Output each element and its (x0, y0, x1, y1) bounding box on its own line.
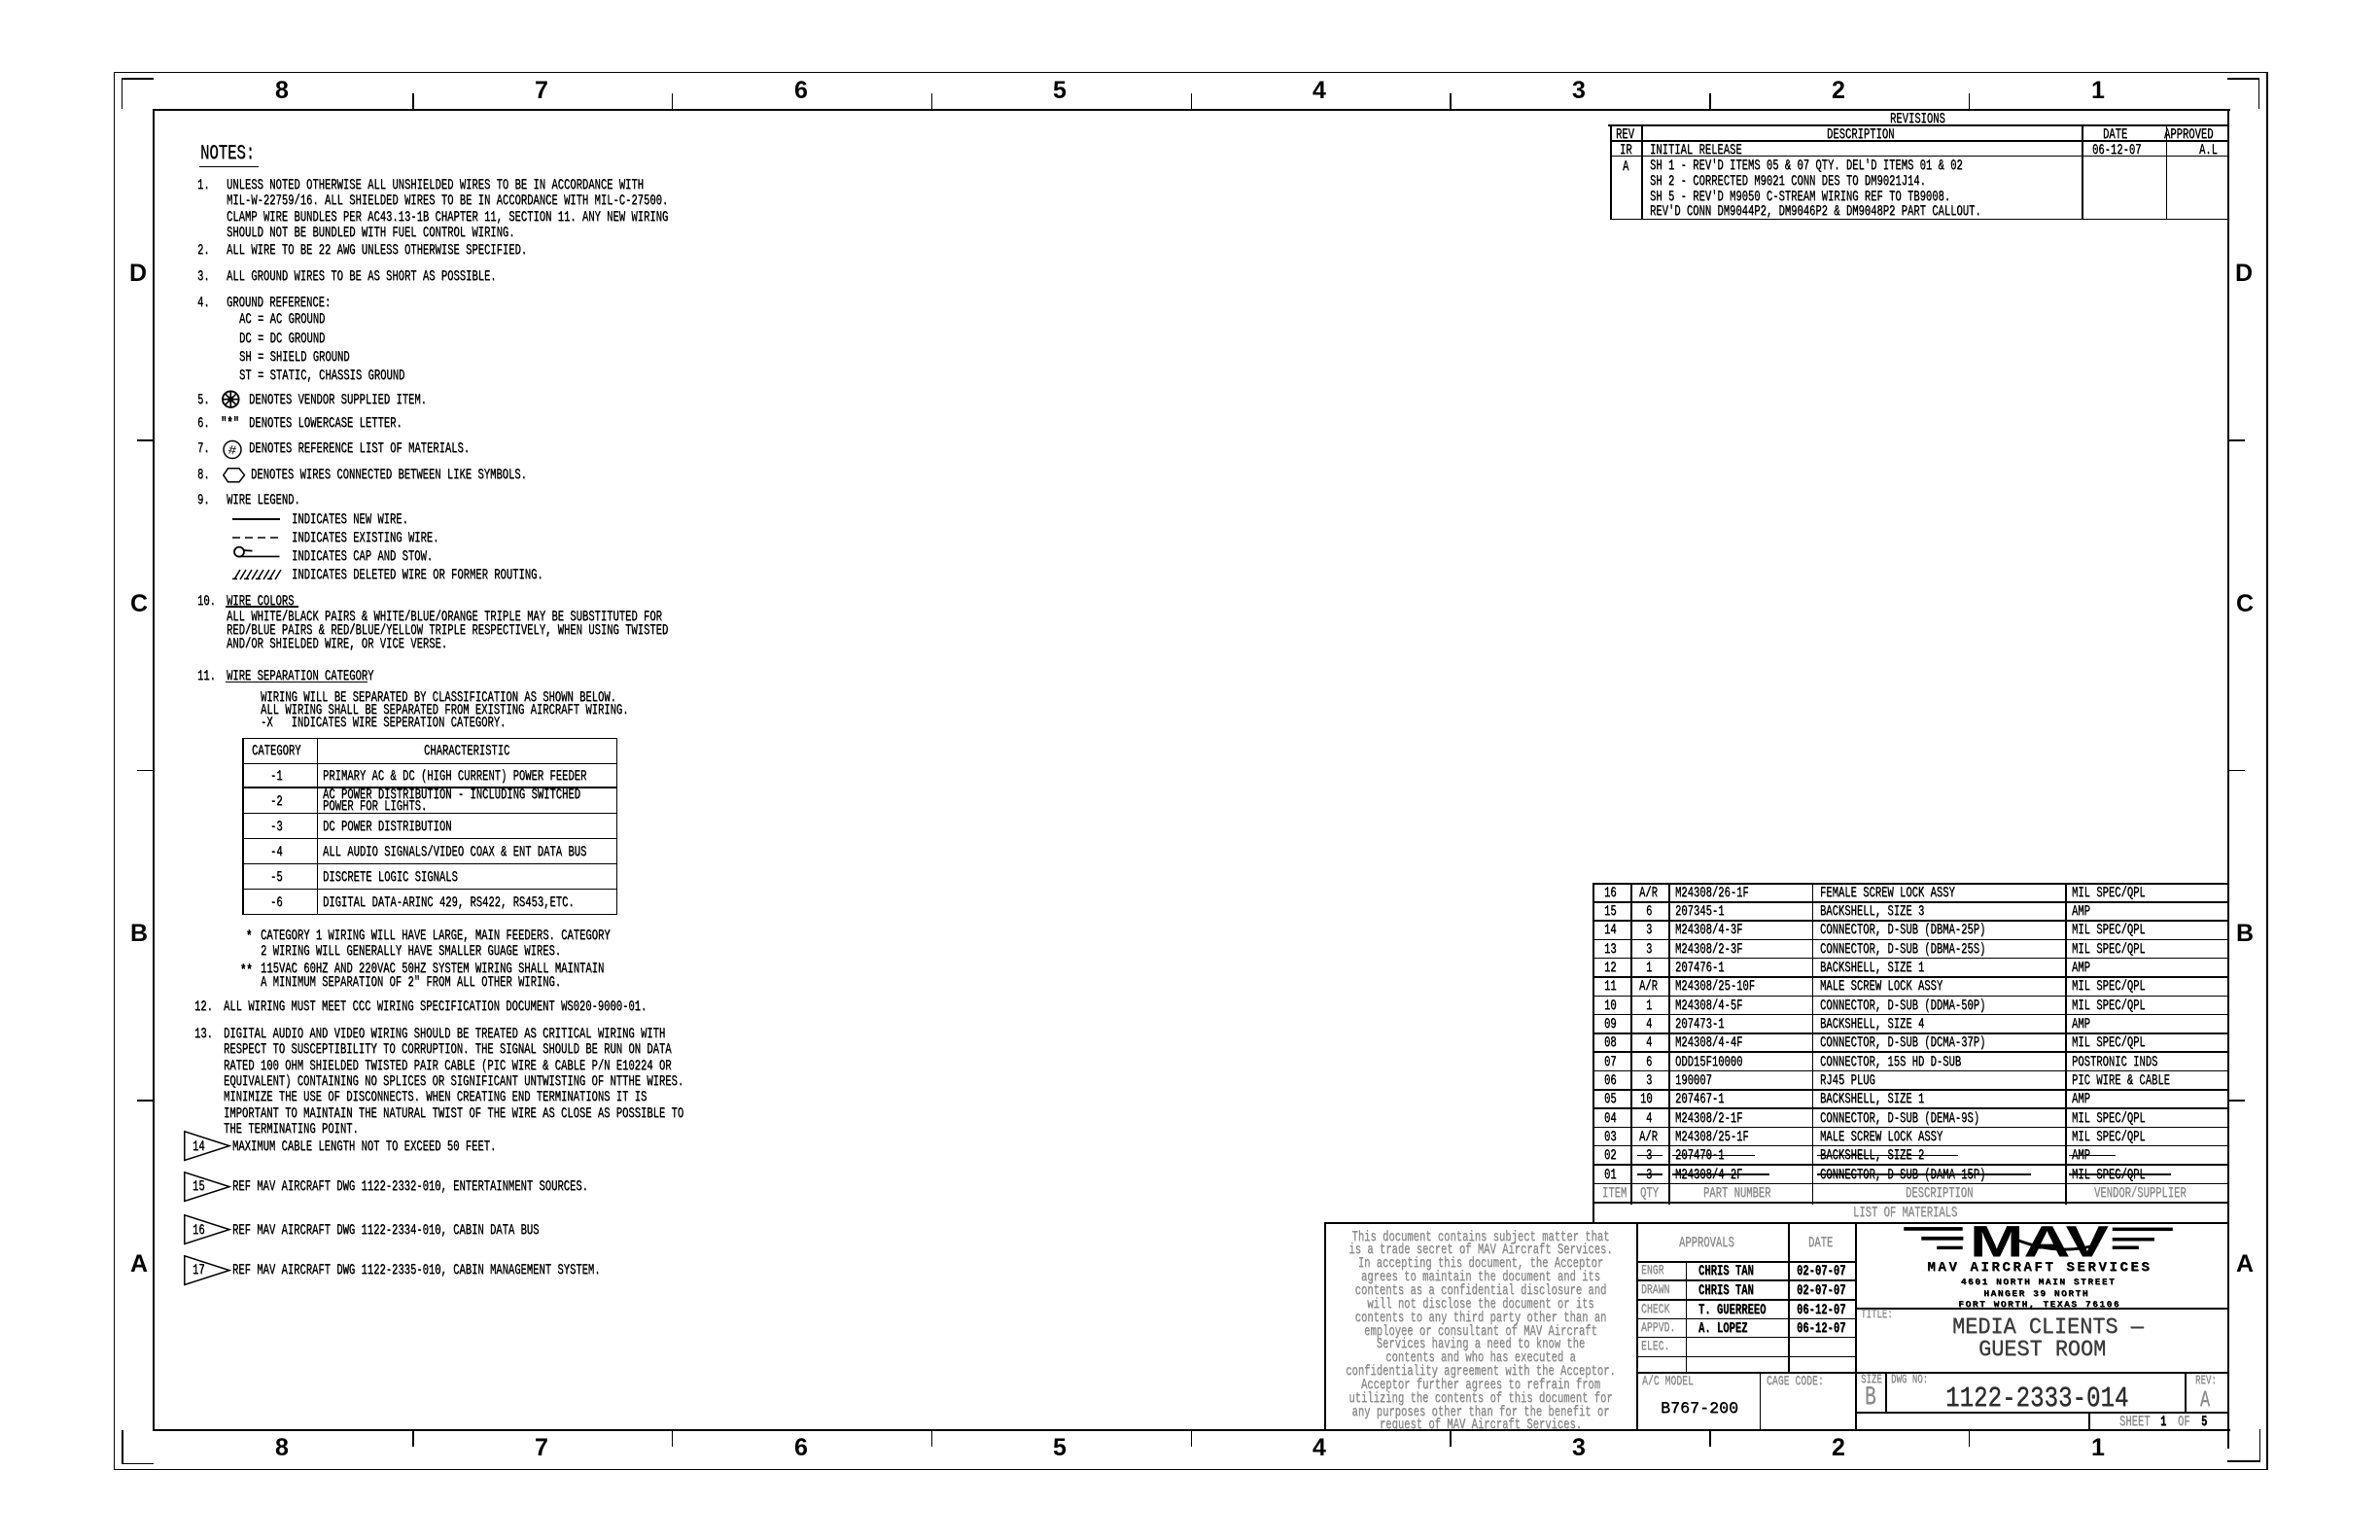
svg-text:MAV: MAV (1970, 1217, 2109, 1267)
